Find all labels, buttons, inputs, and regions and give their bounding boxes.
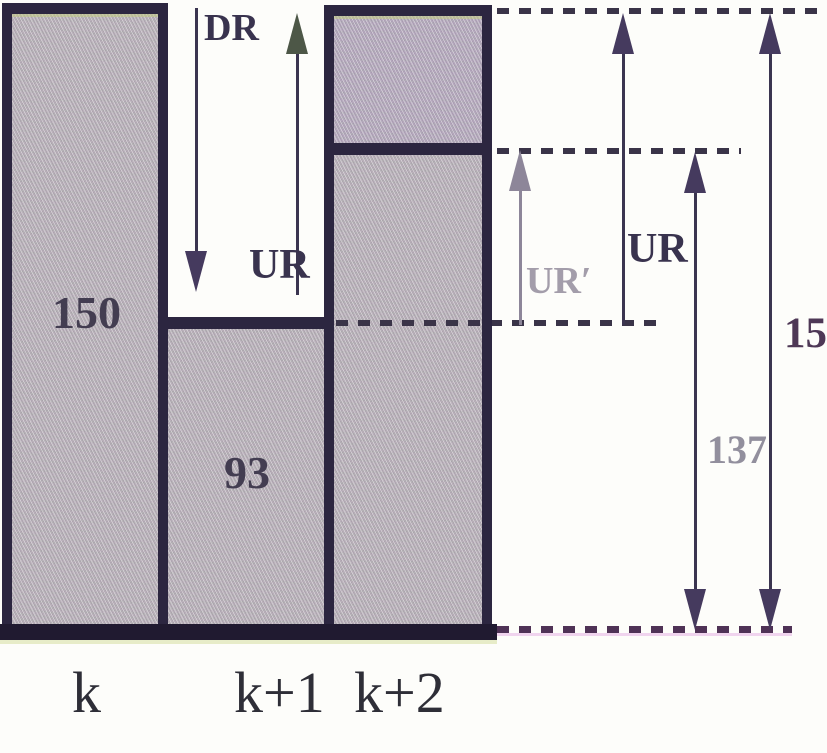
bar-k2-right-border — [482, 5, 492, 624]
measurement-150-label: 150 — [784, 312, 827, 355]
dr-label: DR — [204, 9, 259, 47]
dr-arrow-shaft — [195, 8, 198, 252]
category-label-k1: k+1 — [234, 664, 325, 722]
scan-artifact-line — [334, 16, 483, 19]
ur-prime-arrow-shaft — [519, 188, 522, 325]
bar-k-left-border — [2, 3, 12, 624]
dashed-line-level-0 — [497, 626, 792, 633]
x-axis-baseline — [0, 624, 497, 640]
ur-gap-arrow-up-head — [286, 13, 308, 54]
bar-k-top-border — [2, 3, 166, 14]
rate-adjustment-bar-chart: DR UR UR′ UR 150 93 137 150 k k+1 k+2 — [0, 0, 827, 753]
bar-k2-divider-137-level — [324, 143, 492, 155]
dr-arrow-down-head — [185, 251, 207, 292]
bar-k1-top-border — [158, 317, 334, 329]
ur-right-arrow-shaft — [622, 52, 625, 325]
bar-k1-k2-shared-border — [324, 5, 334, 624]
category-label-k2: k+2 — [354, 664, 445, 722]
scan-artifact-line — [12, 14, 159, 17]
ur-prime-arrow-up-head — [509, 150, 531, 191]
bar-k-k1-shared-border — [158, 3, 168, 624]
dashed-line-level-93 — [336, 320, 656, 326]
bar-k2-top-border — [324, 5, 492, 16]
category-label-k: k — [72, 664, 101, 722]
bar-k2-top-section-fill — [334, 16, 483, 143]
arrow-137-up-head — [684, 152, 706, 193]
measurement-137-label: 137 — [707, 430, 767, 470]
ur-prime-label: UR′ — [526, 262, 592, 300]
arrow-150-shaft — [769, 52, 772, 590]
ur-right-arrow-up-head — [612, 13, 634, 54]
bar-k-value-label: 150 — [52, 290, 121, 336]
ur-gap-label: UR — [249, 244, 310, 286]
arrow-150-up-head — [759, 13, 781, 54]
arrow-137-shaft — [694, 190, 697, 590]
arrow-150-down-head — [759, 589, 781, 630]
bar-k2-lower-fill — [334, 155, 483, 624]
arrow-137-down-head — [684, 589, 706, 630]
ur-right-label: UR — [627, 228, 688, 270]
bar-k1-value-label: 93 — [224, 450, 270, 496]
